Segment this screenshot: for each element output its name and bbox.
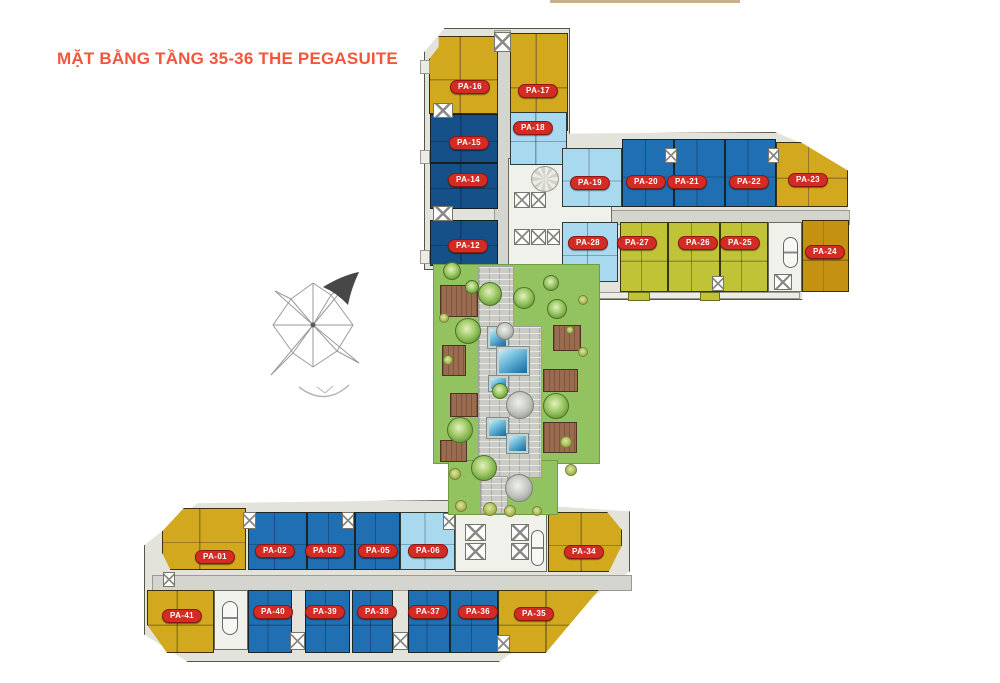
unit-label-pa-25[interactable]: PA-25 <box>720 236 760 250</box>
unit-label-pa-34[interactable]: PA-34 <box>564 545 604 559</box>
unit-label-pa-03[interactable]: PA-03 <box>305 544 345 558</box>
unit-label-pa-36[interactable]: PA-36 <box>458 605 498 619</box>
unit-label-pa-06[interactable]: PA-06 <box>408 544 448 558</box>
unit-label-pa-05[interactable]: PA-05 <box>358 544 398 558</box>
unit-label-pa-02[interactable]: PA-02 <box>255 544 295 558</box>
unit-label-pa-12[interactable]: PA-12 <box>448 239 488 253</box>
unit-label-pa-16[interactable]: PA-16 <box>450 80 490 94</box>
unit-label-pa-15[interactable]: PA-15 <box>449 136 489 150</box>
unit-label-pa-22[interactable]: PA-22 <box>729 175 769 189</box>
unit-label-pa-39[interactable]: PA-39 <box>305 605 345 619</box>
unit-label-pa-35[interactable]: PA-35 <box>514 607 554 621</box>
unit-label-pa-38[interactable]: PA-38 <box>357 605 397 619</box>
unit-label-pa-20[interactable]: PA-20 <box>626 175 666 189</box>
unit-label-pa-19[interactable]: PA-19 <box>570 176 610 190</box>
unit-badge-layer: PA-01PA-02PA-03PA-05PA-06PA-12PA-14PA-15… <box>0 0 1000 683</box>
unit-label-pa-24[interactable]: PA-24 <box>805 245 845 259</box>
unit-label-pa-41[interactable]: PA-41 <box>162 609 202 623</box>
unit-label-pa-28[interactable]: PA-28 <box>568 236 608 250</box>
unit-label-pa-26[interactable]: PA-26 <box>678 236 718 250</box>
unit-label-pa-40[interactable]: PA-40 <box>253 605 293 619</box>
unit-label-pa-18[interactable]: PA-18 <box>513 121 553 135</box>
floorplan-page: MẶT BẰNG TẦNG 35-36 THE PEGASUITE <box>0 0 1000 683</box>
unit-label-pa-37[interactable]: PA-37 <box>408 605 448 619</box>
unit-label-pa-27[interactable]: PA-27 <box>617 236 657 250</box>
unit-label-pa-23[interactable]: PA-23 <box>788 173 828 187</box>
unit-label-pa-21[interactable]: PA-21 <box>667 175 707 189</box>
unit-label-pa-01[interactable]: PA-01 <box>195 550 235 564</box>
unit-label-pa-14[interactable]: PA-14 <box>448 173 488 187</box>
unit-label-pa-17[interactable]: PA-17 <box>518 84 558 98</box>
